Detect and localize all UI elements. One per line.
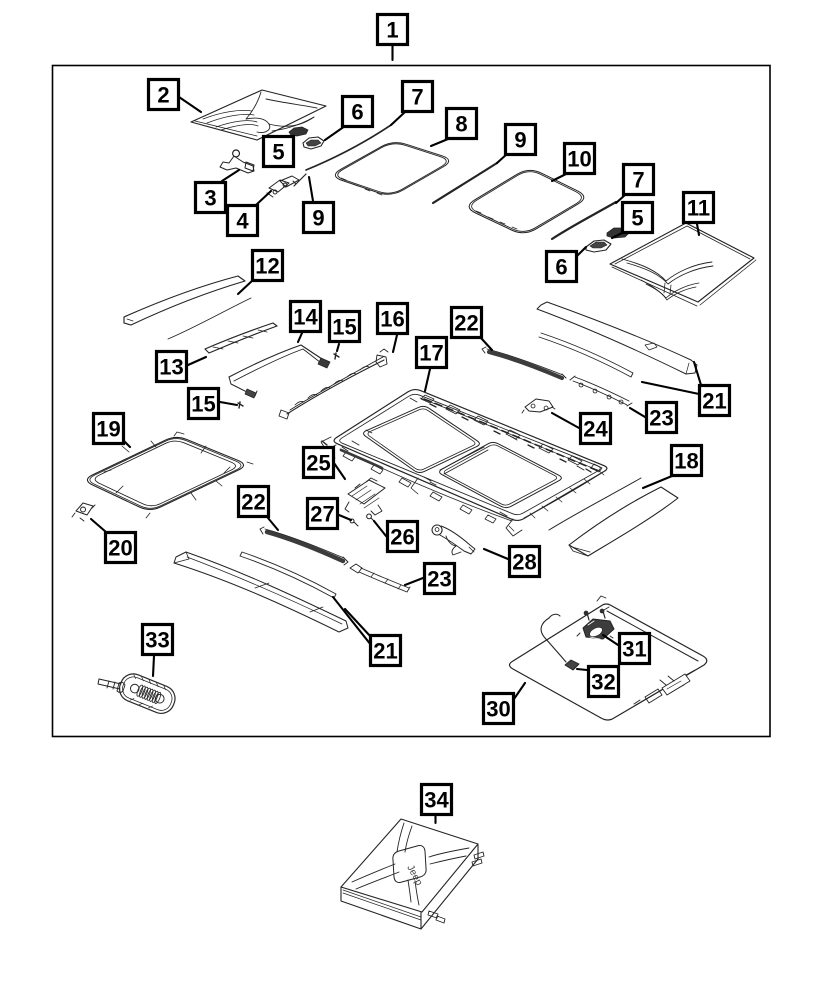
svg-text:21: 21 xyxy=(702,389,726,414)
svg-text:5: 5 xyxy=(272,140,284,165)
svg-text:10: 10 xyxy=(567,147,591,172)
svg-text:30: 30 xyxy=(486,697,510,722)
svg-text:23: 23 xyxy=(649,406,673,431)
svg-text:27: 27 xyxy=(310,502,334,527)
svg-text:13: 13 xyxy=(159,355,183,380)
svg-text:25: 25 xyxy=(306,451,330,476)
svg-text:15: 15 xyxy=(332,315,356,340)
svg-text:11: 11 xyxy=(687,196,710,221)
svg-text:31: 31 xyxy=(622,637,646,662)
svg-text:9: 9 xyxy=(312,206,324,231)
svg-text:21: 21 xyxy=(373,639,397,664)
svg-text:4: 4 xyxy=(236,209,249,234)
svg-text:6: 6 xyxy=(555,255,567,280)
svg-text:16: 16 xyxy=(380,307,404,332)
svg-text:34: 34 xyxy=(424,788,449,813)
svg-text:22: 22 xyxy=(241,490,265,515)
svg-text:32: 32 xyxy=(591,670,615,695)
svg-text:26: 26 xyxy=(390,525,414,550)
svg-text:22: 22 xyxy=(454,311,478,336)
svg-text:20: 20 xyxy=(108,536,132,561)
svg-text:17: 17 xyxy=(419,341,443,366)
svg-text:5: 5 xyxy=(631,206,643,231)
svg-text:24: 24 xyxy=(583,417,608,442)
svg-text:15: 15 xyxy=(191,392,215,417)
svg-text:1: 1 xyxy=(386,18,398,43)
svg-text:7: 7 xyxy=(411,85,423,110)
svg-text:9: 9 xyxy=(514,128,526,153)
svg-text:28: 28 xyxy=(512,550,536,575)
svg-text:18: 18 xyxy=(674,449,698,474)
svg-text:33: 33 xyxy=(145,628,169,653)
svg-text:3: 3 xyxy=(204,186,216,211)
svg-text:6: 6 xyxy=(351,100,363,125)
svg-text:23: 23 xyxy=(427,567,451,592)
svg-text:7: 7 xyxy=(632,168,644,193)
svg-text:19: 19 xyxy=(96,417,120,442)
svg-text:14: 14 xyxy=(293,305,318,330)
svg-text:8: 8 xyxy=(455,112,467,137)
svg-text:12: 12 xyxy=(255,254,279,279)
svg-text:2: 2 xyxy=(157,83,169,108)
